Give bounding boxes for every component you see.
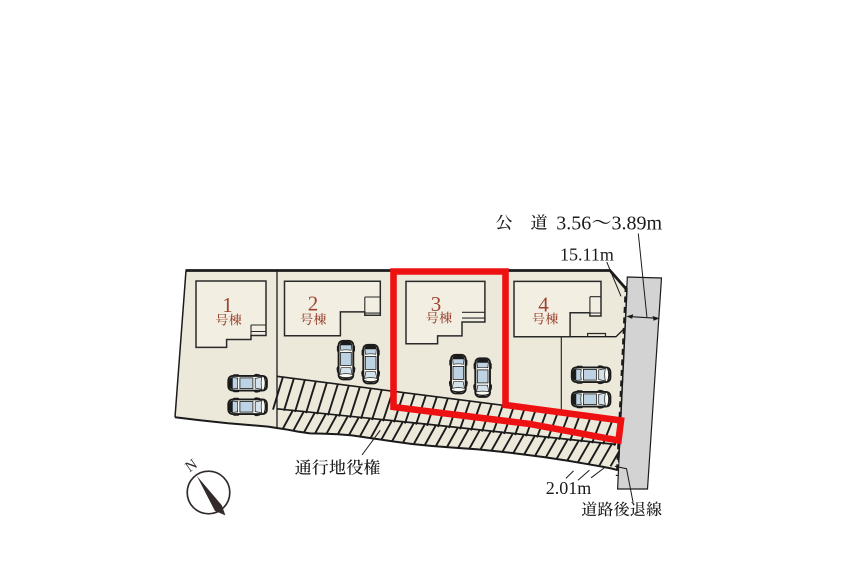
svg-text:1: 1 [222, 293, 233, 317]
svg-text:15.11m: 15.11m [560, 245, 614, 265]
svg-text:2: 2 [308, 292, 319, 316]
svg-text:4: 4 [538, 293, 549, 317]
svg-text:2.01m: 2.01m [546, 478, 592, 498]
svg-text:3.89m: 3.89m [612, 213, 663, 235]
svg-text:3.56: 3.56 [556, 213, 591, 235]
